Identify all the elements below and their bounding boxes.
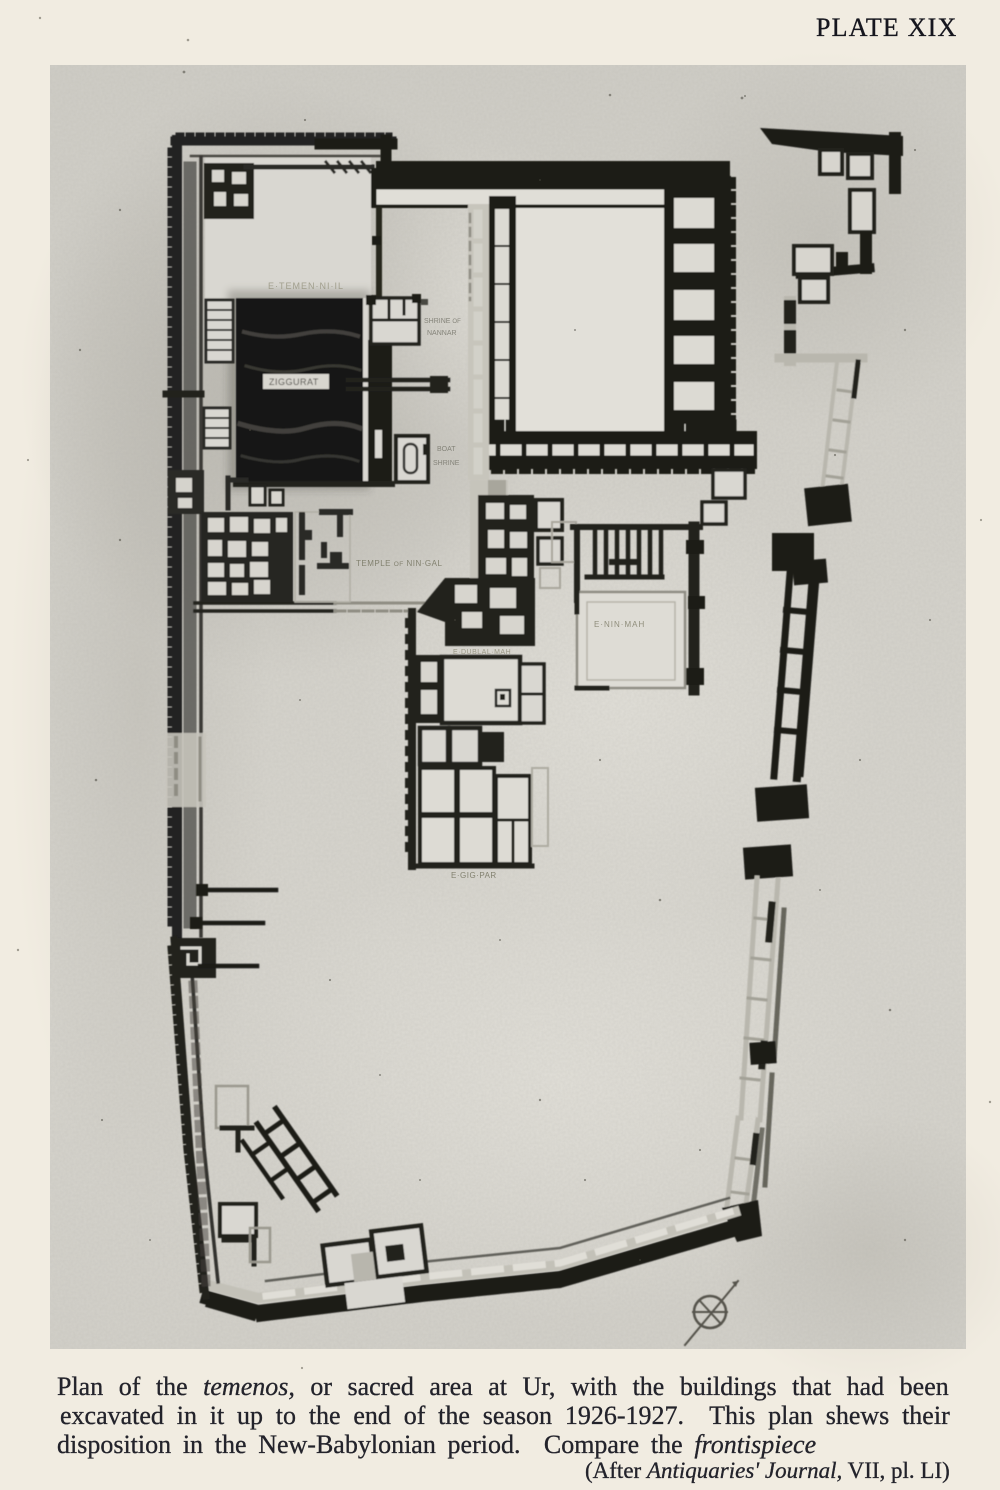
svg-text:ZIGGURAT: ZIGGURAT (269, 377, 319, 387)
svg-text:E·NIN·MAH: E·NIN·MAH (594, 620, 645, 629)
svg-text:NANNAR: NANNAR (427, 330, 457, 337)
svg-text:E·GIG·PAR: E·GIG·PAR (451, 871, 497, 880)
svg-text:BOAT: BOAT (437, 446, 456, 453)
svg-text:SHRINE OF: SHRINE OF (424, 318, 461, 325)
svg-text:SHRINE: SHRINE (433, 460, 460, 467)
svg-text:E·TEMEN·NI·IL: E·TEMEN·NI·IL (268, 281, 344, 291)
svg-text:TEMPLE OF NIN·GAL: TEMPLE OF NIN·GAL (356, 559, 442, 568)
svg-text:E·DUBLAL·MAH: E·DUBLAL·MAH (453, 649, 511, 656)
